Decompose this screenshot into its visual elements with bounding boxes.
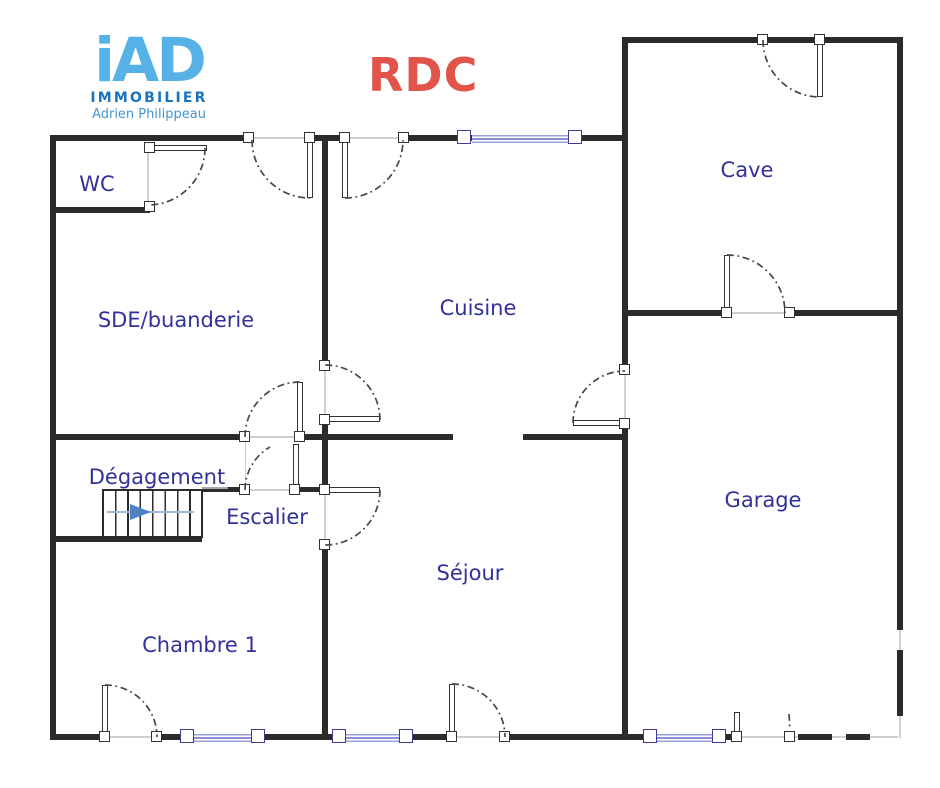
iad-logo: iAD IMMOBILIER Adrien Philippeau <box>60 30 238 122</box>
door-swing-arc <box>105 685 157 737</box>
floor-plan-page: iAD IMMOBILIER Adrien Philippeau RDC WC … <box>0 0 940 788</box>
hinge-node <box>319 360 330 371</box>
hinge-node <box>784 307 795 318</box>
doorway-guide-line <box>247 436 298 438</box>
wall-segment <box>790 310 903 316</box>
room-label-degagement: Dégagement <box>86 465 228 489</box>
window-frame-node <box>457 130 471 144</box>
hinge-node <box>289 484 300 495</box>
door-leaf <box>817 42 823 97</box>
wall-segment <box>622 422 628 740</box>
wall-segment <box>798 734 832 740</box>
door-swing-arc <box>148 148 205 205</box>
hinge-node <box>757 34 768 45</box>
wall-segment <box>523 434 628 440</box>
room-label-wc: WC <box>76 172 117 196</box>
room-label-cave: Cave <box>718 158 777 182</box>
doorway-guide-line <box>349 137 402 139</box>
wall-segment <box>322 135 328 368</box>
window-frame-node <box>568 130 582 144</box>
doorway-guide-line <box>624 373 626 422</box>
door-swing-arc <box>245 382 300 437</box>
hinge-node <box>239 431 250 442</box>
stairs-direction-arrow-icon <box>130 504 151 520</box>
doorway-guide-line <box>245 440 246 487</box>
hinge-node <box>239 484 250 495</box>
hinge-node <box>619 364 630 375</box>
hinge-node <box>398 132 409 143</box>
doorway-guide-line <box>324 492 326 543</box>
door-swing-arc <box>452 684 505 737</box>
stairs <box>102 489 203 538</box>
doorway-guide-line <box>452 736 505 738</box>
window-frame-node <box>643 729 657 743</box>
wall-segment <box>622 310 727 316</box>
iad-logo-subtitle: IMMOBILIER <box>60 90 238 106</box>
wall-segment <box>50 207 150 213</box>
window-frame-node <box>399 729 413 743</box>
hinge-node <box>304 132 315 143</box>
wall-segment <box>897 37 903 630</box>
wall-segment <box>846 734 870 740</box>
doorway-guide-line <box>324 368 326 418</box>
hinge-node <box>814 34 825 45</box>
door-leaf <box>724 255 730 313</box>
hinge-node <box>731 731 742 742</box>
wall-segment <box>50 434 247 440</box>
door-leaf <box>102 685 108 737</box>
iad-logo-agent-name: Adrien Philippeau <box>60 107 238 122</box>
iad-logo-wordmark: iAD <box>60 30 238 92</box>
wall-segment <box>50 536 202 542</box>
door-swing-arc <box>763 40 820 97</box>
door-leaf <box>297 382 303 437</box>
wall-segment <box>298 434 453 440</box>
window-glass <box>194 734 254 742</box>
hinge-node <box>319 539 330 550</box>
doorway-guide-line <box>105 736 157 738</box>
window-glass <box>346 734 402 742</box>
door-swing-arc <box>325 490 380 545</box>
door-leaf <box>150 145 207 151</box>
hinge-node <box>294 431 305 442</box>
hinge-node <box>784 731 795 742</box>
wall-segment <box>622 37 628 316</box>
wall-segment <box>50 135 253 141</box>
doorway-guide-line <box>727 312 790 314</box>
door-swing-arc <box>789 714 790 729</box>
door-swing-arc <box>573 371 625 423</box>
window-frame-node <box>712 729 726 743</box>
door-leaf <box>342 141 348 198</box>
window-frame-node <box>332 729 346 743</box>
wall-segment <box>322 418 328 492</box>
hinge-node <box>446 731 457 742</box>
wall-segment <box>505 734 651 740</box>
hinge-node <box>243 132 254 143</box>
door-leaf <box>573 420 625 426</box>
window-frame-node <box>251 729 265 743</box>
floor-title: RDC <box>368 52 478 98</box>
room-label-garage: Garage <box>722 488 805 512</box>
doorway-guide-line <box>737 736 790 738</box>
door-swing-arc <box>345 140 403 198</box>
hinge-node <box>319 414 330 425</box>
room-label-sejour: Séjour <box>434 561 507 585</box>
door-leaf <box>328 487 380 493</box>
room-label-chambre1: Chambre 1 <box>139 633 261 657</box>
wall-segment <box>50 734 105 740</box>
hinge-node <box>499 731 510 742</box>
doorway-guide-line <box>253 137 306 139</box>
door-leaf <box>328 416 380 422</box>
door-swing-arc <box>325 365 380 420</box>
room-label-escalier: Escalier <box>223 505 311 529</box>
window-glass <box>657 734 715 742</box>
wall-segment <box>322 543 328 740</box>
window-glass <box>472 135 570 143</box>
doorway-guide-line <box>899 630 901 650</box>
room-label-cuisine: Cuisine <box>437 296 520 320</box>
door-leaf <box>449 684 455 737</box>
hinge-node <box>721 307 732 318</box>
door-leaf <box>307 141 313 198</box>
hinge-node <box>339 132 350 143</box>
hinge-node <box>144 142 155 153</box>
door-swing-arc <box>727 255 785 313</box>
room-label-sde: SDE/buanderie <box>95 308 257 332</box>
door-swing-arc <box>252 140 310 198</box>
window-frame-node <box>180 729 194 743</box>
hinge-node <box>144 201 155 212</box>
wall-segment <box>897 650 903 716</box>
hinge-node <box>319 484 330 495</box>
hinge-node <box>99 731 110 742</box>
doorway-guide-line <box>247 489 293 491</box>
hinge-node <box>619 418 630 429</box>
hinge-node <box>151 731 162 742</box>
doorway-guide-line <box>899 716 901 738</box>
